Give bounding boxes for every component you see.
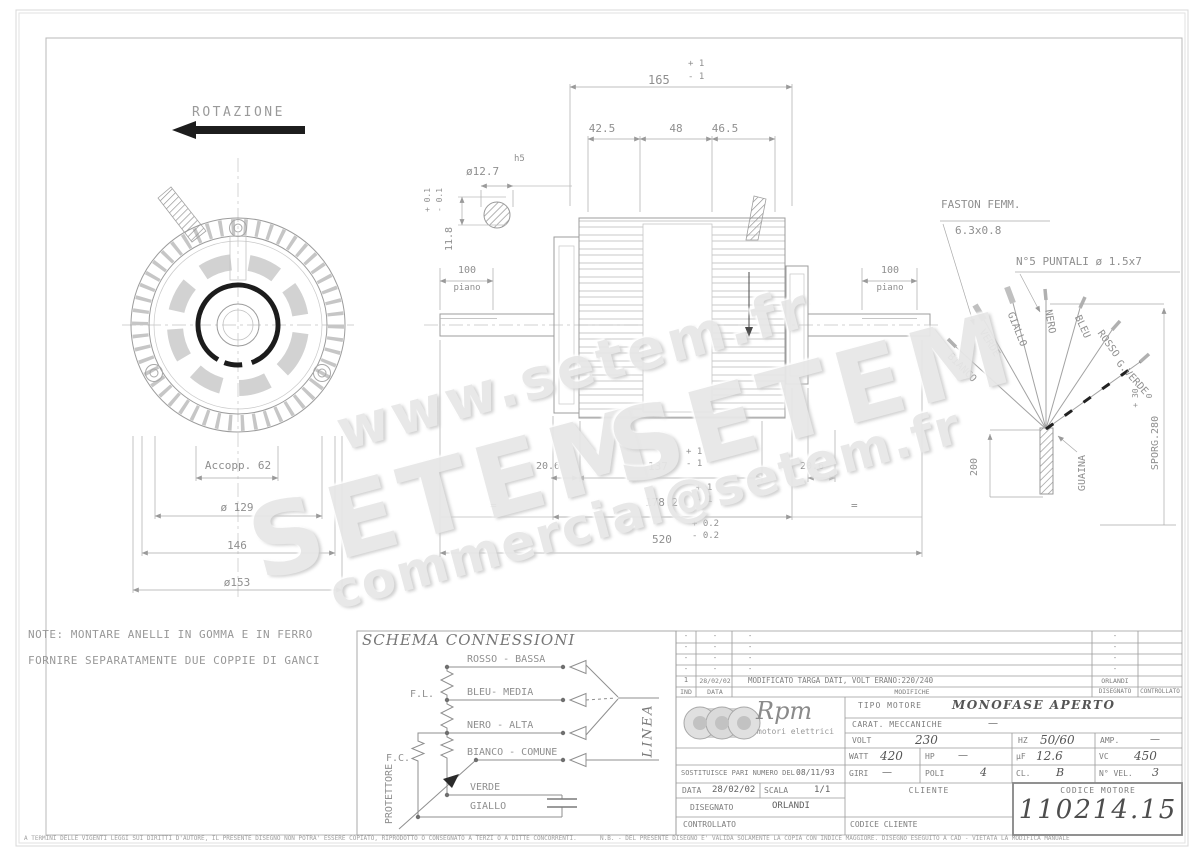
equal-right: =: [851, 500, 858, 511]
note-line1: NOTE: MONTARE ANELLI IN GOMMA E IN FERRO: [28, 629, 313, 640]
rev-header-disegnato: DISEGNATO: [1092, 689, 1138, 695]
schema-bianco: BIANCO - COMUNE: [467, 748, 557, 758]
brand-tagline: motori elettrici: [757, 728, 834, 736]
puntali-label: N°5 PUNTALI ø 1.5x7: [1016, 256, 1142, 267]
rev-row-modifiche: -: [748, 666, 752, 673]
footer-legal-right: N.B. - DEL PRESENTE DISEGNO E' VALIDA SO…: [600, 836, 1070, 842]
schema-protettore: PROTETTORE: [385, 756, 395, 832]
carat-label: CARAT. MECCANICHE: [852, 721, 942, 729]
rev-row-modifiche: -: [748, 644, 752, 651]
rev-header-modifiche: MODIFICHE: [732, 689, 1092, 696]
schema-title: SCHEMA CONNESSIONI: [362, 633, 575, 648]
giri-value: —: [882, 768, 892, 778]
rev-header-controllato: CONTROLLATO: [1138, 689, 1182, 695]
codice-motore-value: 110214.15: [1016, 797, 1180, 823]
guaina-label: GUAINA: [1078, 445, 1088, 501]
hp-value: —: [958, 751, 968, 761]
rotation-label: ROTAZIONE: [192, 106, 285, 119]
rev-row-data: -: [698, 655, 732, 662]
controllato-label: CONTROLLATO: [683, 821, 736, 829]
rev-header-ind: IND: [676, 689, 696, 696]
rev-row-disegnato: -: [1094, 644, 1136, 651]
tol-11-8-plus: + 0.1: [424, 180, 432, 220]
rev-row-ind: -: [676, 633, 696, 640]
dim-48: 48: [656, 123, 696, 134]
schema-verde: VERDE: [470, 783, 500, 793]
rev-row-disegnato: -: [1094, 655, 1136, 662]
dim-42-5: 42.5: [578, 123, 626, 134]
sostituisce-label: SOSTITUISCE PARI NUMERO DEL: [681, 770, 795, 777]
tol-165-plus: + 1: [688, 60, 704, 69]
faston-label: FASTON FEMM.: [941, 199, 1020, 210]
piano-right: piano: [862, 284, 918, 293]
rev-row-disegnato: ORLANDI: [1094, 678, 1136, 685]
note-line2: FORNIRE SEPARATAMENTE DUE COPPIE DI GANC…: [28, 655, 320, 666]
rev-row-disegnato: -: [1094, 666, 1136, 673]
vc-value: 450: [1134, 750, 1157, 762]
sheath: [1040, 428, 1053, 494]
watt-label: WATT: [849, 753, 868, 761]
scala-label: SCALA: [764, 787, 788, 795]
rev-row-data: 28/02/02: [698, 678, 732, 685]
poli-label: POLI: [925, 770, 944, 778]
cl-label: CL.: [1016, 770, 1030, 778]
line-arrows: [570, 661, 586, 767]
rev-row-modifiche: MODIFICATO TARGA DATI, VOLT ERANO:220/24…: [748, 677, 933, 685]
rev-header-data: DATA: [698, 689, 732, 696]
rev-row-data: -: [698, 666, 732, 673]
schema-linea: LINEA: [642, 701, 655, 761]
shaft-section-detail: [484, 202, 510, 228]
schema-fl: F.L.: [410, 690, 434, 700]
dim-100-right: 100: [862, 266, 918, 276]
rpm-logo-icon: [684, 707, 760, 739]
cl-value: B: [1056, 767, 1064, 778]
data-label: DATA: [682, 787, 701, 795]
volt-value: 230: [915, 734, 938, 746]
volt-label: VOLT: [852, 737, 871, 745]
tipo-motore-label: TIPO MOTORE: [858, 702, 922, 710]
nvel-value: 3: [1152, 767, 1159, 778]
tol-520-minus: - 0.2: [692, 532, 719, 541]
giri-label: GIRI: [849, 770, 868, 778]
sporg-tol-plus: + 30: [1132, 380, 1140, 416]
codice-motore-label: CODICE MOTORE: [1020, 787, 1176, 795]
fit-h5: h5: [514, 155, 525, 164]
schema-giallo: GIALLO: [470, 802, 506, 812]
rotation-arrow-icon: [172, 121, 305, 139]
rev-row-ind: 1: [676, 677, 696, 684]
faston-size: 6.3x0.8: [955, 225, 1001, 236]
hp-label: HP: [925, 753, 935, 761]
switch-arrow-icon: [443, 774, 459, 788]
dim-11-8: 11.8: [445, 219, 455, 259]
vc-label: VC: [1099, 753, 1109, 761]
hz-value: 50/60: [1040, 734, 1075, 746]
schema-nero: NERO - ALTA: [467, 721, 533, 731]
dim-accopp: Accopp. 62: [185, 460, 291, 471]
drawing-sheet: ROTAZIONE Accopp. 62 ø 129 146 ø153 165 …: [0, 0, 1200, 849]
schema-bleu: BLEU- MEDIA: [467, 688, 533, 698]
carat-value: —: [988, 719, 998, 729]
schema-rosso: ROSSO - BASSA: [467, 655, 545, 665]
dim-200: 200: [970, 447, 980, 487]
sporg-tol-minus: 0: [1146, 378, 1154, 414]
nvel-label: N° VEL.: [1099, 770, 1133, 778]
rev-row-data: -: [698, 633, 732, 640]
amp-value: —: [1150, 735, 1160, 745]
brand-name: Rpm: [756, 699, 812, 723]
dim-d12-7: ø12.7: [466, 166, 499, 177]
dim-165: 165: [648, 74, 670, 86]
tol-11-8-minus: - 0.1: [436, 180, 444, 220]
uf-label: µF: [1016, 753, 1026, 761]
cliente-label: CLIENTE: [884, 787, 974, 795]
rev-row-ind: -: [676, 666, 696, 673]
amp-label: AMP.: [1100, 737, 1119, 745]
rev-row-ind: -: [676, 655, 696, 662]
dim-100-left: 100: [444, 266, 490, 276]
rev-row-modifiche: -: [748, 633, 752, 640]
faston-terminal: [1007, 287, 1013, 303]
piano-left: piano: [444, 284, 490, 293]
rev-row-ind: -: [676, 644, 696, 651]
poli-value: 4: [980, 767, 987, 778]
capacitor-icon: [547, 799, 577, 807]
tipo-motore-value: MONOFASE APERTO: [952, 699, 1115, 711]
rev-row-data: -: [698, 644, 732, 651]
tol-165-minus: - 1: [688, 73, 704, 82]
disegnato-value: ORLANDI: [772, 802, 810, 811]
uf-value: 12.6: [1036, 750, 1063, 762]
sostituisce-value: 08/11/93: [796, 769, 835, 777]
watt-value: 420: [880, 750, 903, 762]
data-value: 28/02/02: [712, 786, 755, 795]
rev-row-modifiche: -: [748, 655, 752, 662]
scala-value: 1/1: [814, 786, 830, 795]
codice-cliente-label: CODICE CLIENTE: [850, 821, 917, 829]
hz-label: HZ: [1018, 737, 1028, 745]
sporg-label: SPORG.280: [1151, 407, 1161, 479]
disegnato-label: DISEGNATO: [690, 804, 733, 812]
footer-legal-left: A TERMINI DELLE VIGENTI LEGGI SUI DIRITT…: [24, 836, 577, 842]
rev-row-disegnato: -: [1094, 633, 1136, 640]
dim-46-5: 46.5: [701, 123, 749, 134]
